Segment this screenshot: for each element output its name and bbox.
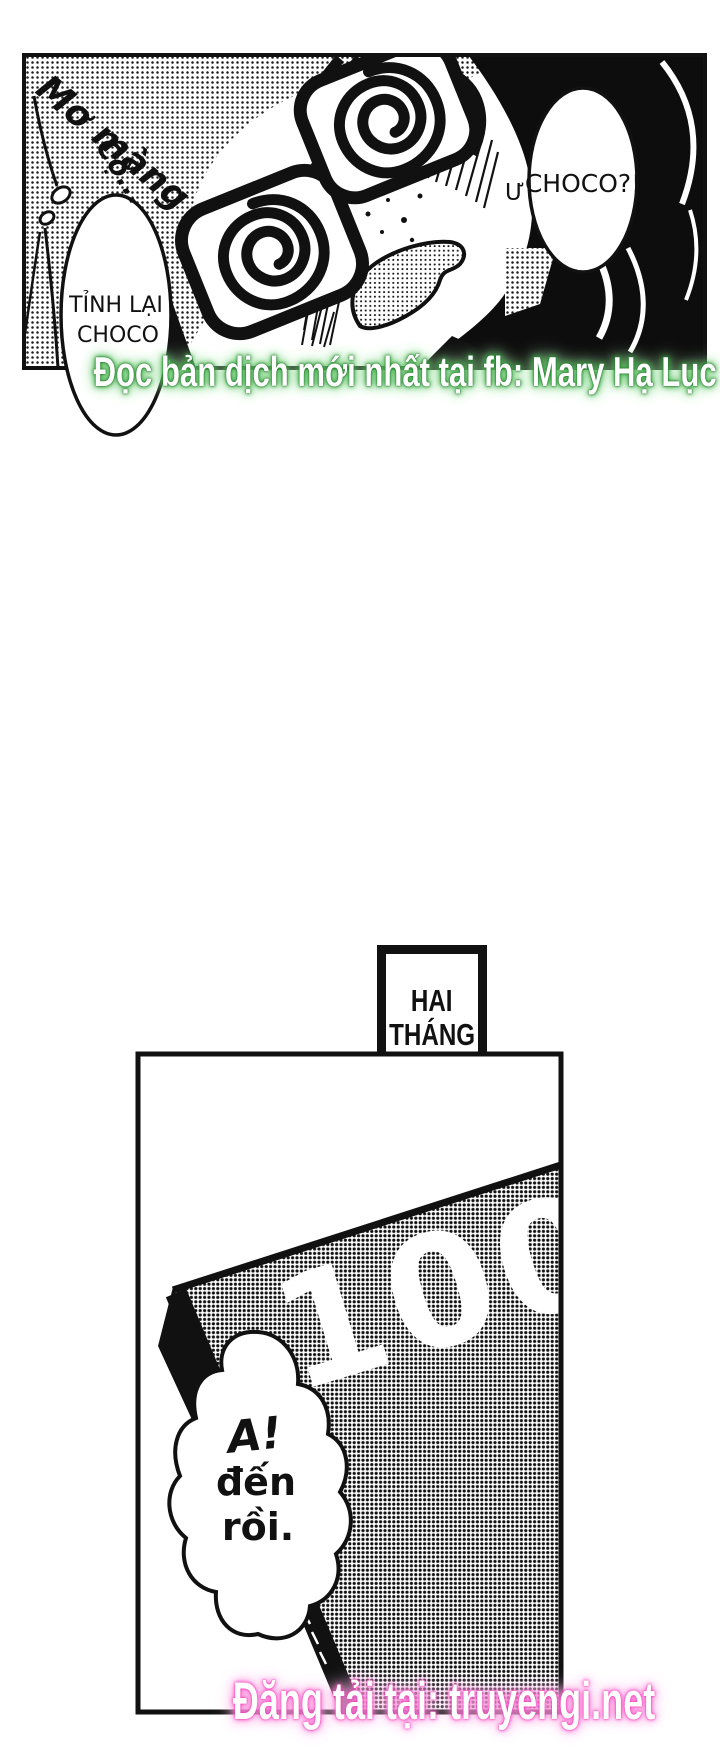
panel-2-artwork: 100 A! đến rồi.: [0, 1040, 720, 1750]
manga-page: Ư CHOCO?! TỈNH LẠI CHOCO Mơ màng Cộ... Đ…: [0, 0, 720, 1750]
cloud-bubble-line1: A!: [222, 1407, 284, 1464]
left-bubble-line2: CHOCO: [77, 323, 159, 348]
site-watermark: Đăng tải tại: truyengi.net: [199, 1674, 689, 1730]
cloud-bubble-line3: rồi.: [222, 1505, 294, 1549]
right-bubble-prefix: Ư: [505, 180, 525, 206]
left-bubble-line1: TỈNH LẠI: [68, 291, 163, 318]
timeskip-line1: HAI: [411, 984, 453, 1018]
cloud-bubble-line2: đến: [216, 1460, 296, 1504]
right-bubble-text: CHOCO?!: [525, 169, 641, 198]
translator-watermark: Đọc bản dịch mới nhất tại fb: Mary Hạ Lụ…: [94, 350, 627, 394]
